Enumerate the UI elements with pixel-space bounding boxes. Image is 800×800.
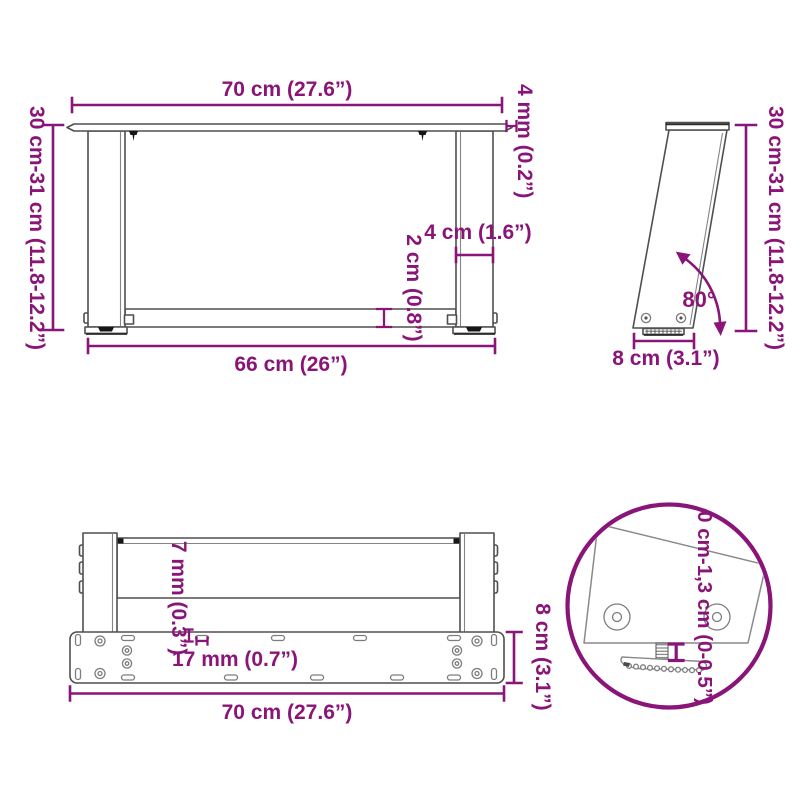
mounting-screws [129,131,427,141]
side-foot-pad [643,329,684,335]
slot-hole [391,675,404,680]
slot-hole [272,636,285,641]
plate-thickness-label: 7 mm (0.3”) [167,541,190,655]
slot-hole [76,635,81,646]
side-height-dim-line [736,125,756,331]
bottom-right-post [460,533,498,633]
thread-bead [669,667,674,672]
diagram-canvas: 70 cm (27.6”) 4 mm (0.2”) 30 cm-31 cm (1… [0,0,800,800]
left-leg-body [88,131,125,327]
slot-hole [492,669,497,680]
side-top-cap [666,123,729,131]
thread-bead [683,668,688,673]
tabletop-plate [67,124,512,131]
thread-bead [662,666,667,671]
front-top-width-label: 70 cm (27.6”) [222,78,353,101]
detail-screw-hole-center [613,613,622,622]
side-depth-dim-line [634,334,694,348]
thread-bead [655,666,660,671]
right-foot-pad [466,327,482,332]
front-inner-width-label: 66 cm (26”) [234,353,347,376]
top-thickness-label: 4 mm (0.2”) [513,84,536,198]
ring-hole-center [455,649,459,653]
plate-depth-label: 8 cm (3.1”) [531,603,554,710]
ring-hole-center [125,649,129,653]
side-height-label: 30 cm-31 cm (11.8-12.2”) [764,106,787,350]
side-depth-label: 8 cm (3.1”) [612,347,719,370]
slot-hole [448,636,461,641]
ring-hole-center [455,662,459,666]
front-inner-width-dim-line [88,339,495,353]
bottom-left-post [80,533,118,633]
adjustment-marker [670,644,684,661]
slot-hole [76,669,81,680]
screw-hole-center [644,316,647,319]
leg-width-label: 4 cm (1.6”) [424,221,531,244]
bottom-width-label: 70 cm (27.6”) [222,701,353,724]
slot-hole [354,636,367,641]
screw-hole-center [679,316,682,319]
ring-hole-center [98,639,102,643]
side-view: 80° 30 cm-31 cm (11.8-12.2”) 8 cm (3.1”) [612,106,787,370]
left-leg-clip [125,315,134,324]
front-view: 70 cm (27.6”) 4 mm (0.2”) 30 cm-31 cm (1… [25,78,536,376]
slot-hole [311,675,324,680]
slot-hole [492,635,497,646]
dimension-diagram: 70 cm (27.6”) 4 mm (0.2”) 30 cm-31 cm (1… [0,0,800,800]
detail-contents [584,524,766,673]
left-foot-pad [98,327,114,332]
band-screw-left [118,539,124,544]
slot-hole [122,675,135,680]
thread-bead [648,665,653,670]
screw-icon [418,131,427,141]
bottom-width-dim-line [70,687,504,701]
right-leg-clip [448,315,457,324]
slot-hole [448,675,461,680]
thread-bead [641,665,646,670]
angle-label: 80° [682,287,715,312]
adjustment-label: 0 cm-1,3 cm (0-0.5”) [693,511,716,705]
slot-hole [122,636,135,641]
bottom-view: 7 mm (0.3”) 17 mm (0.7”) 70 cm (27.6”) 8… [70,533,554,724]
arc-arrowhead-down-icon [714,321,727,336]
ring-hole-center [98,672,102,676]
detail-view: 0 cm-1,3 cm (0-0.5”) [568,505,771,708]
post-body [460,533,494,633]
slot-hole [225,675,238,680]
ring-hole-center [125,662,129,666]
stretcher-thickness-label: 2 cm (0.8”) [402,234,425,341]
plate-depth-dim-line [507,632,522,683]
thread-bead [676,667,681,672]
adjuster-thread-rod [656,643,668,659]
hole-spacing-label: 17 mm (0.7”) [172,648,298,671]
ring-hole-center [475,672,479,676]
front-left-leg [84,131,134,334]
ring-hole-center [475,639,479,643]
front-height-label: 30 cm-31 cm (11.8-12.2”) [25,106,48,350]
screw-icon [129,131,138,141]
band-screw-right [454,539,460,544]
thread-bead [634,664,639,669]
post-body [83,533,117,633]
